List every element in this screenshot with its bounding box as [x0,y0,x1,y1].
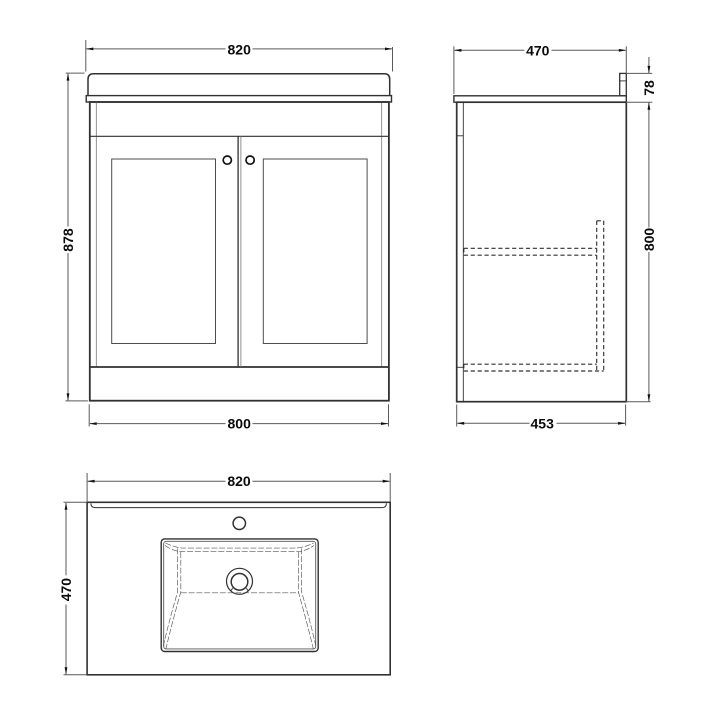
svg-text:470: 470 [58,578,74,602]
svg-text:78: 78 [641,80,657,96]
svg-text:820: 820 [228,41,252,57]
svg-text:878: 878 [60,228,76,252]
svg-text:800: 800 [641,228,657,252]
svg-text:470: 470 [526,42,550,58]
svg-text:820: 820 [227,473,251,489]
svg-text:453: 453 [531,415,555,431]
svg-text:800: 800 [228,416,252,432]
